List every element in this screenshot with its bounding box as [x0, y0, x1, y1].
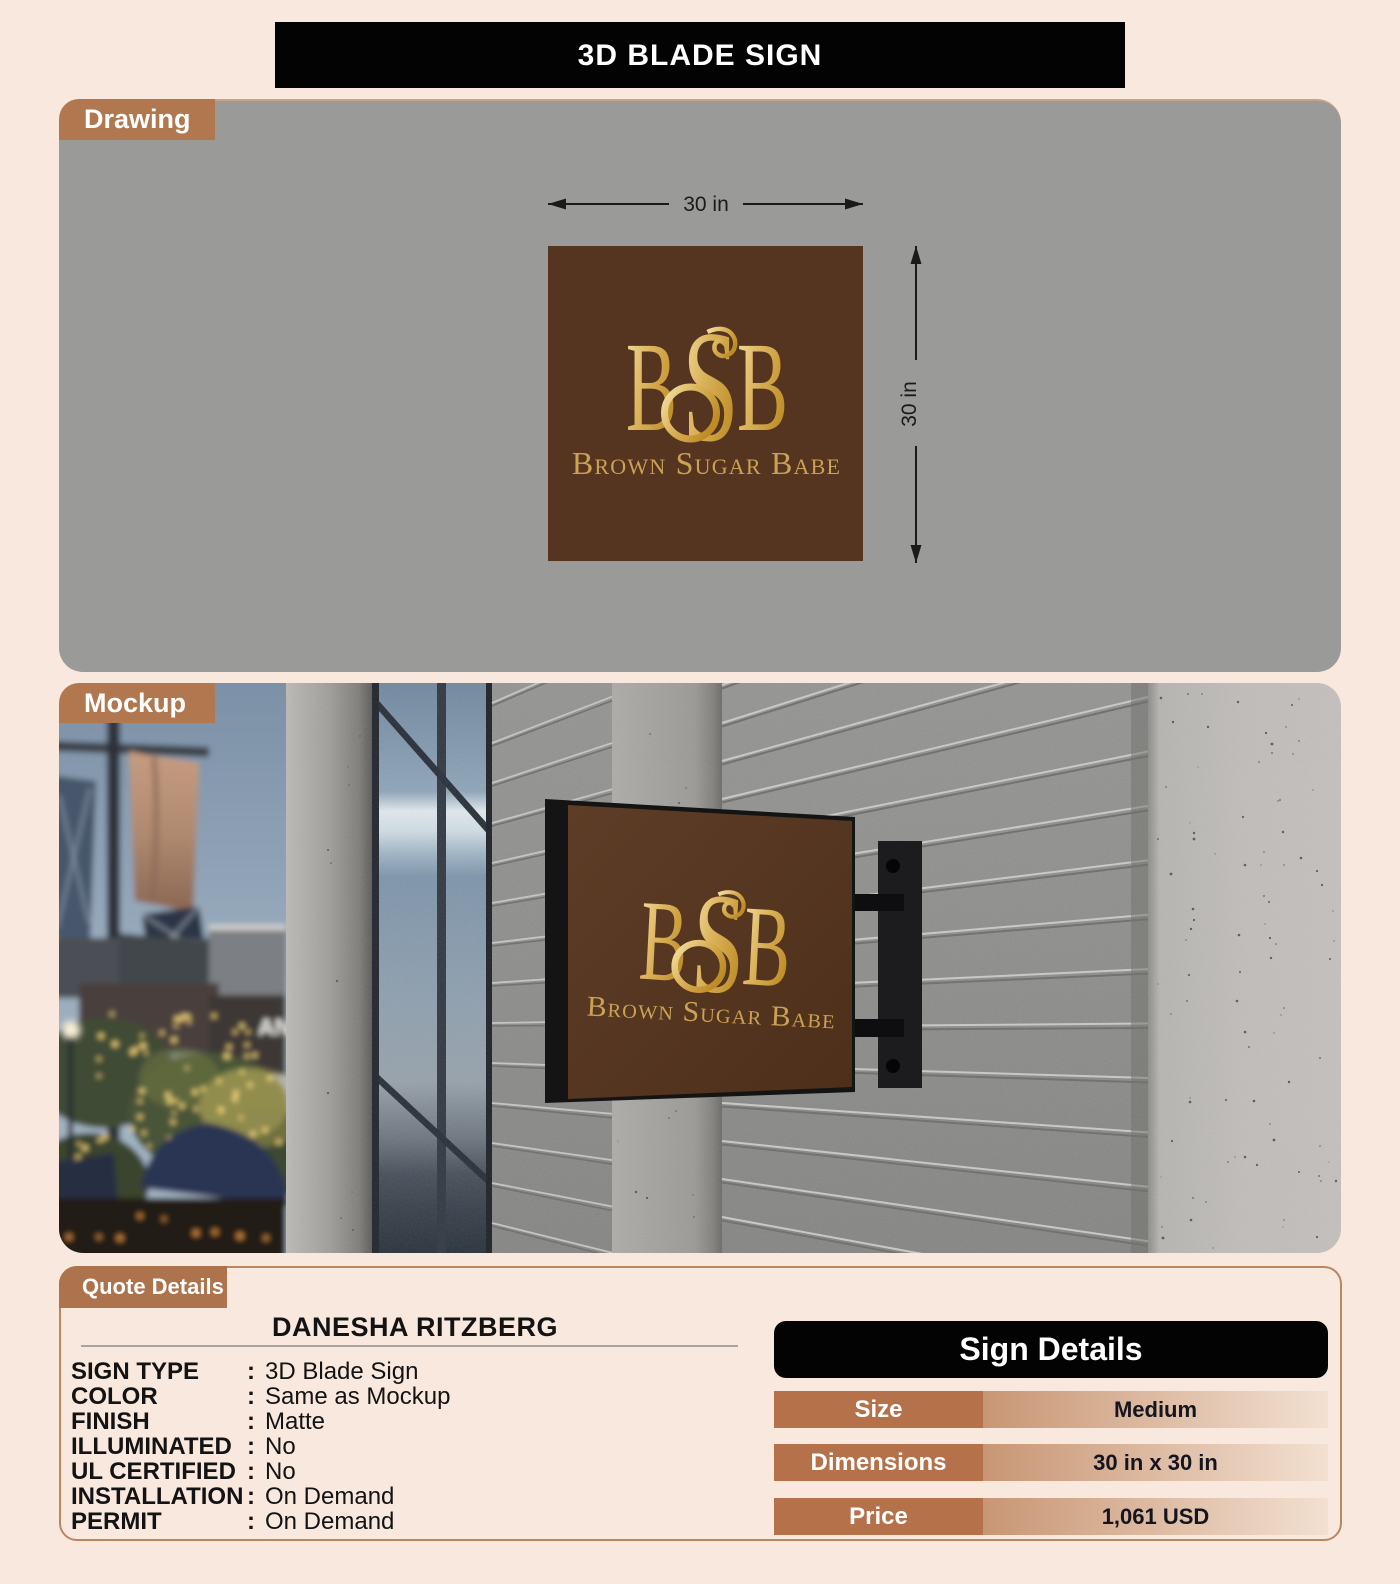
svg-text:30 in: 30 in — [683, 193, 729, 216]
svg-text:30 in: 30 in — [898, 381, 921, 427]
